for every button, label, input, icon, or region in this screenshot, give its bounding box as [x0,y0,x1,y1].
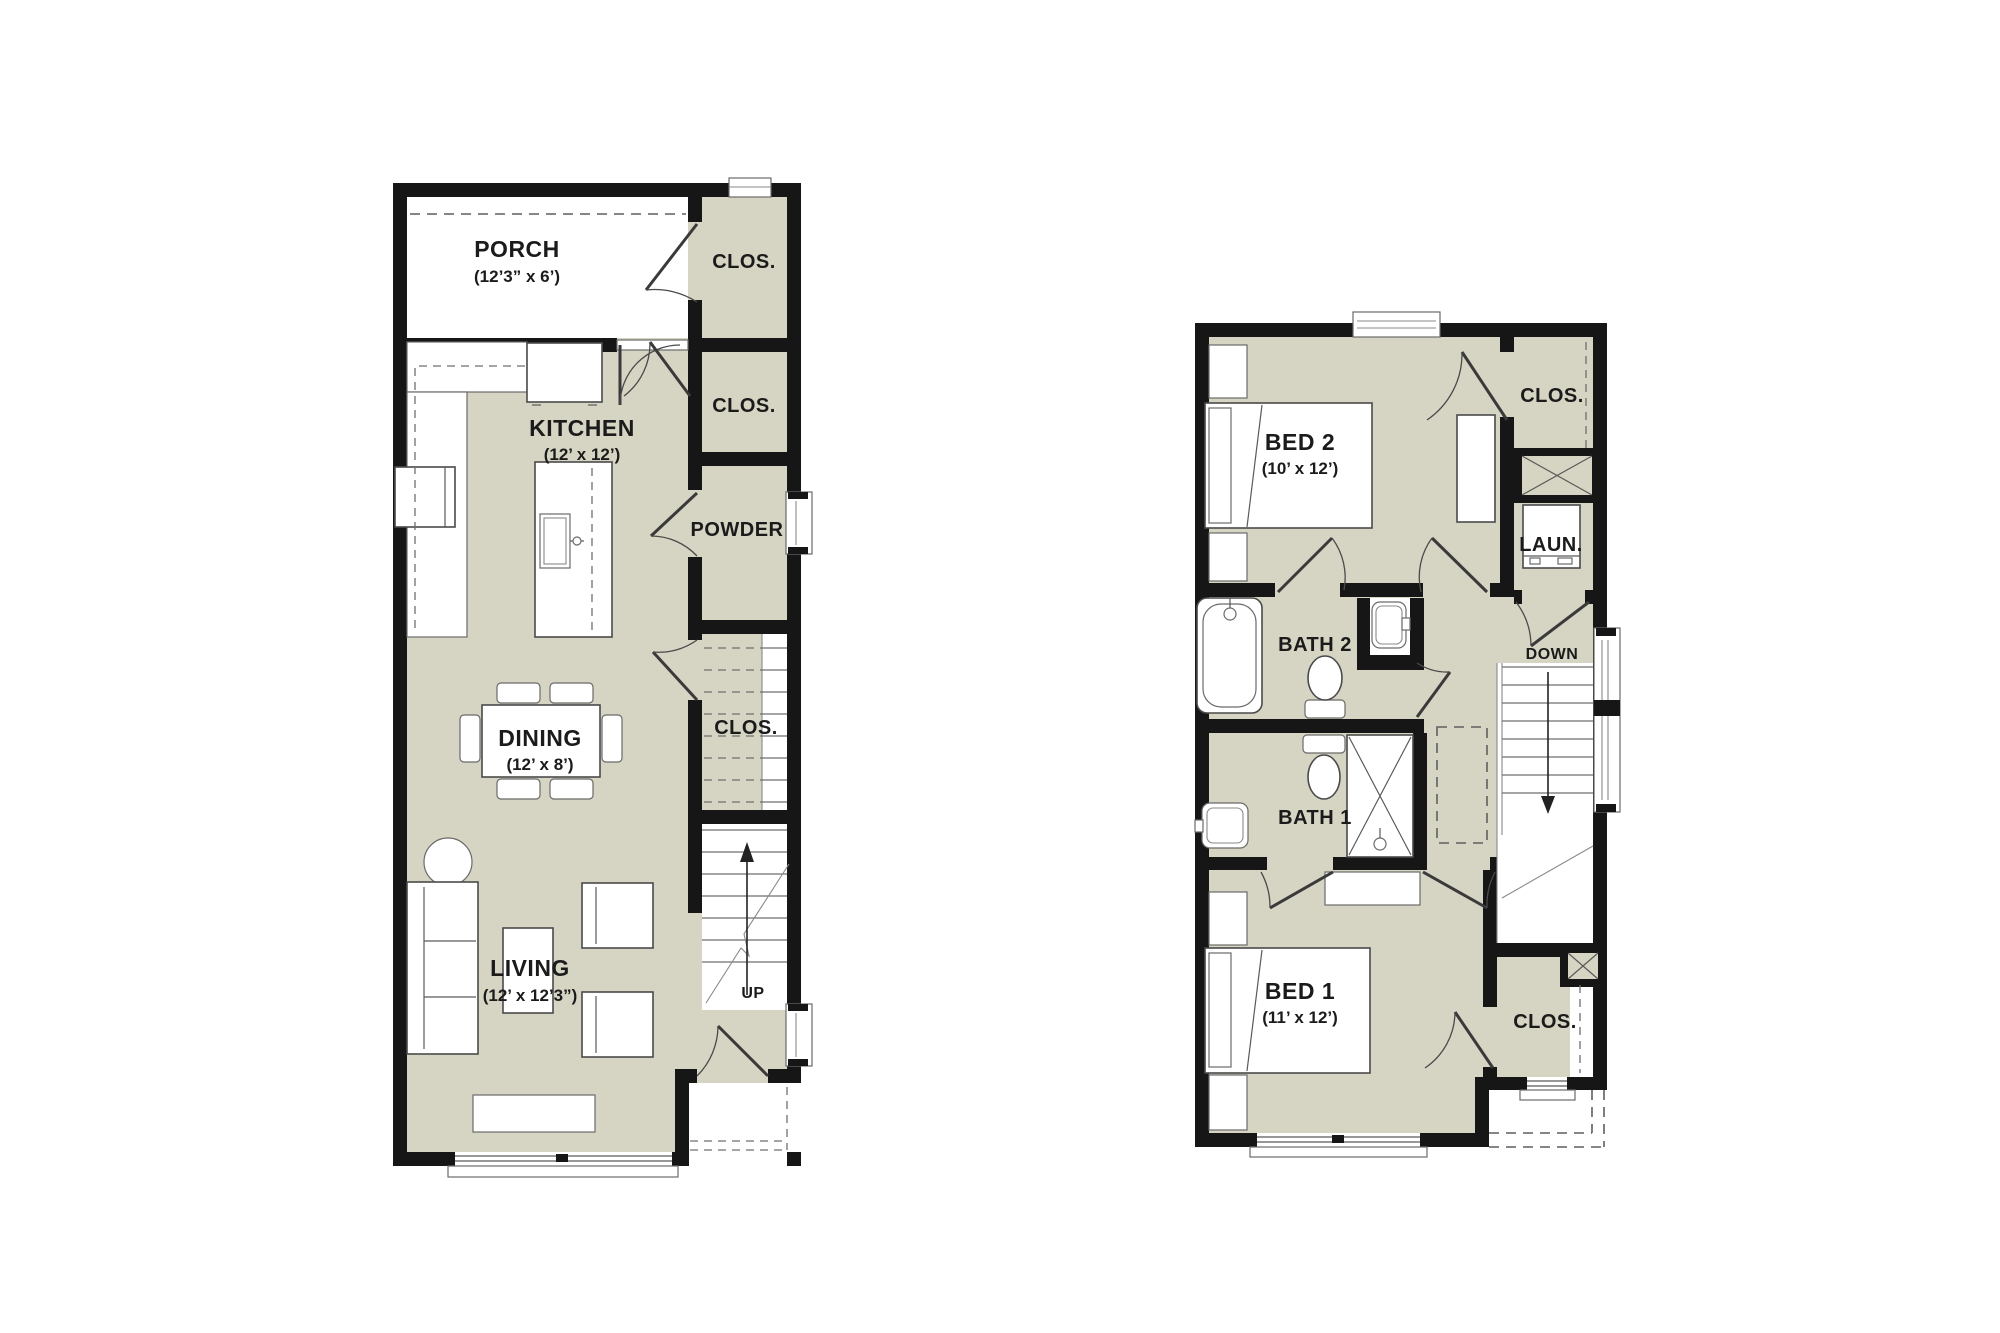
porch-dims: (12’3” x 6’) [474,267,560,286]
bath2-faucet [1402,618,1410,630]
armchair [582,992,653,1057]
closet-bed1-label: CLOS. [1513,1011,1577,1033]
hall-threshold [1325,872,1420,905]
bath2-toilet [1305,656,1345,718]
bed2-headboard [1209,408,1231,523]
bed2-label: BED 2 [1265,429,1335,455]
nightstand [1209,345,1247,398]
floor2-plan: BED 2 (10’ x 12’) CLOS. LAUN. BATH 2 DOW… [1195,312,1620,1157]
range [395,467,455,527]
bed1-label: BED 1 [1265,978,1335,1004]
living-label: LIVING [490,955,570,981]
powder-window [786,492,812,554]
closet-bed1-window [1520,1077,1575,1100]
powder-label: POWDER [691,519,784,541]
side-table [424,838,472,886]
bed2-window [1353,312,1440,337]
stairwell-window [1594,628,1620,812]
dining-label: DINING [498,725,582,751]
shower-drain [1374,838,1386,850]
dining-chair [602,715,622,762]
dining-chair [550,779,593,799]
bed1-headboard [1209,953,1231,1067]
dining-chair [497,779,540,799]
bath1-faucet [1195,820,1203,832]
shower [1347,735,1413,857]
floor-plan-sheet: PORCH (12’3” x 6’) CLOS. CLOS. KITCHEN (… [0,0,2000,1333]
living-dims: (12’ x 12’3”) [483,986,578,1005]
dining-chair [550,683,593,703]
dining-chair [460,715,480,762]
kitchen-label: KITCHEN [529,415,635,441]
bath1-label: BATH 1 [1278,807,1352,829]
sofa [407,882,478,1054]
closet-mid-label: CLOS. [712,395,776,417]
kitchen-dims: (12’ x 12’) [544,445,621,464]
bed1-window [1250,1133,1427,1157]
bed2-dresser [1457,415,1495,522]
entry-stoop-area [689,1083,801,1166]
entry-window [786,1004,812,1066]
nightstand [1209,892,1247,945]
bath2-label: BATH 2 [1278,634,1352,656]
closet-bed2-label: CLOS. [1520,385,1584,407]
laundry-label: LAUN. [1519,534,1583,556]
tub-faucet [1224,608,1236,620]
understair-closet-label: CLOS. [714,717,778,739]
living-window [448,1152,678,1177]
island-faucet [573,537,581,545]
nightstand [1209,533,1247,581]
kitchen-island [535,462,612,637]
closet-top-label: CLOS. [712,251,776,273]
stairs-up-label: UP [741,985,764,1002]
bed1-dims: (11’ x 12’) [1262,1008,1338,1027]
dining-chair [497,683,540,703]
closet-top-window [729,178,771,197]
kitchen-counter-top [407,342,527,392]
porch-label: PORCH [474,236,560,262]
bed2-dims: (10’ x 12’) [1262,459,1339,478]
media-console [473,1095,595,1132]
refrigerator [527,343,602,402]
dining-dims: (12’ x 8’) [506,755,573,774]
floor1-plan: PORCH (12’3” x 6’) CLOS. CLOS. KITCHEN (… [393,178,812,1177]
nightstand [1209,1075,1247,1130]
armchair [582,883,653,948]
stairs-down-label: DOWN [1526,646,1579,663]
floor-plan-drawing: PORCH (12’3” x 6’) CLOS. CLOS. KITCHEN (… [0,0,2000,1333]
